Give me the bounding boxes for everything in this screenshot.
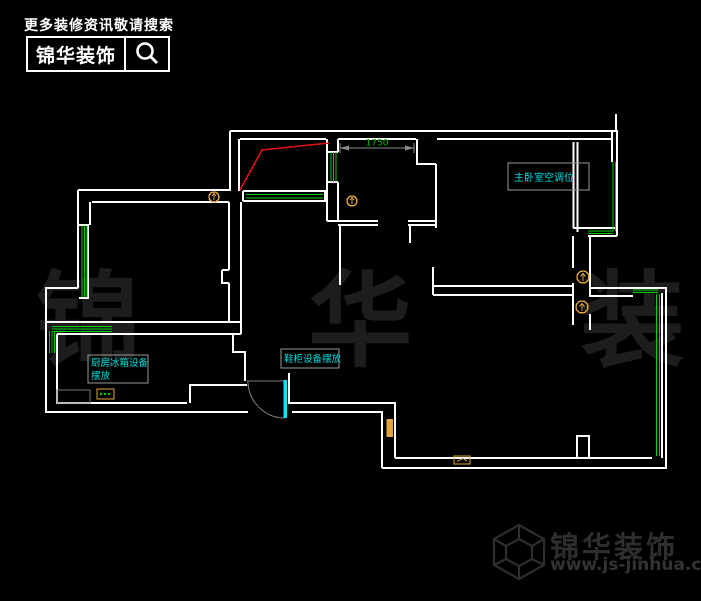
light-symbol-4 — [576, 301, 588, 313]
window-lines — [50, 152, 660, 456]
floorplan-page: 更多装修资讯敬请搜索 锦华装饰 锦 华 装 饰 — [0, 0, 701, 601]
electrical-panel — [387, 419, 394, 437]
dim-arrow-left — [340, 146, 349, 151]
label-kitchen-fridge-line1: 厨房冰箱设备 — [91, 357, 149, 369]
dimension-1750: 1750 — [340, 139, 414, 154]
counter-outline — [57, 390, 90, 403]
windows — [50, 152, 660, 456]
footer-logo: 锦华装饰 www.js-jinhua.com — [488, 518, 701, 588]
fridge-symbol — [97, 389, 114, 399]
label-master-ac-text: 主卧室空调位 — [514, 171, 574, 184]
door-swing-arc — [248, 381, 285, 418]
dimension-value: 1750 — [366, 139, 389, 149]
dim-arrow-right — [405, 146, 414, 151]
label-shoe-cabinet-text: 鞋柜设备摆放 — [284, 353, 342, 365]
label-shoe-cabinet: 鞋柜设备摆放 — [281, 349, 342, 368]
floorplan-drawing: 1750 — [0, 0, 701, 601]
light-symbol-1 — [209, 192, 219, 202]
label-kitchen-fridge-line2: 摆放 — [91, 370, 111, 382]
light-symbol-2 — [347, 196, 357, 206]
cube-logo-icon — [490, 521, 548, 583]
red-guide-line — [240, 143, 329, 190]
label-kitchen-fridge: 厨房冰箱设备 摆放 — [88, 355, 149, 383]
walls — [46, 114, 667, 468]
light-symbol-3 — [577, 271, 589, 283]
outer-walls — [46, 114, 667, 468]
entry-door — [247, 380, 285, 418]
footer-website: www.js-jinhua.com — [550, 555, 701, 575]
